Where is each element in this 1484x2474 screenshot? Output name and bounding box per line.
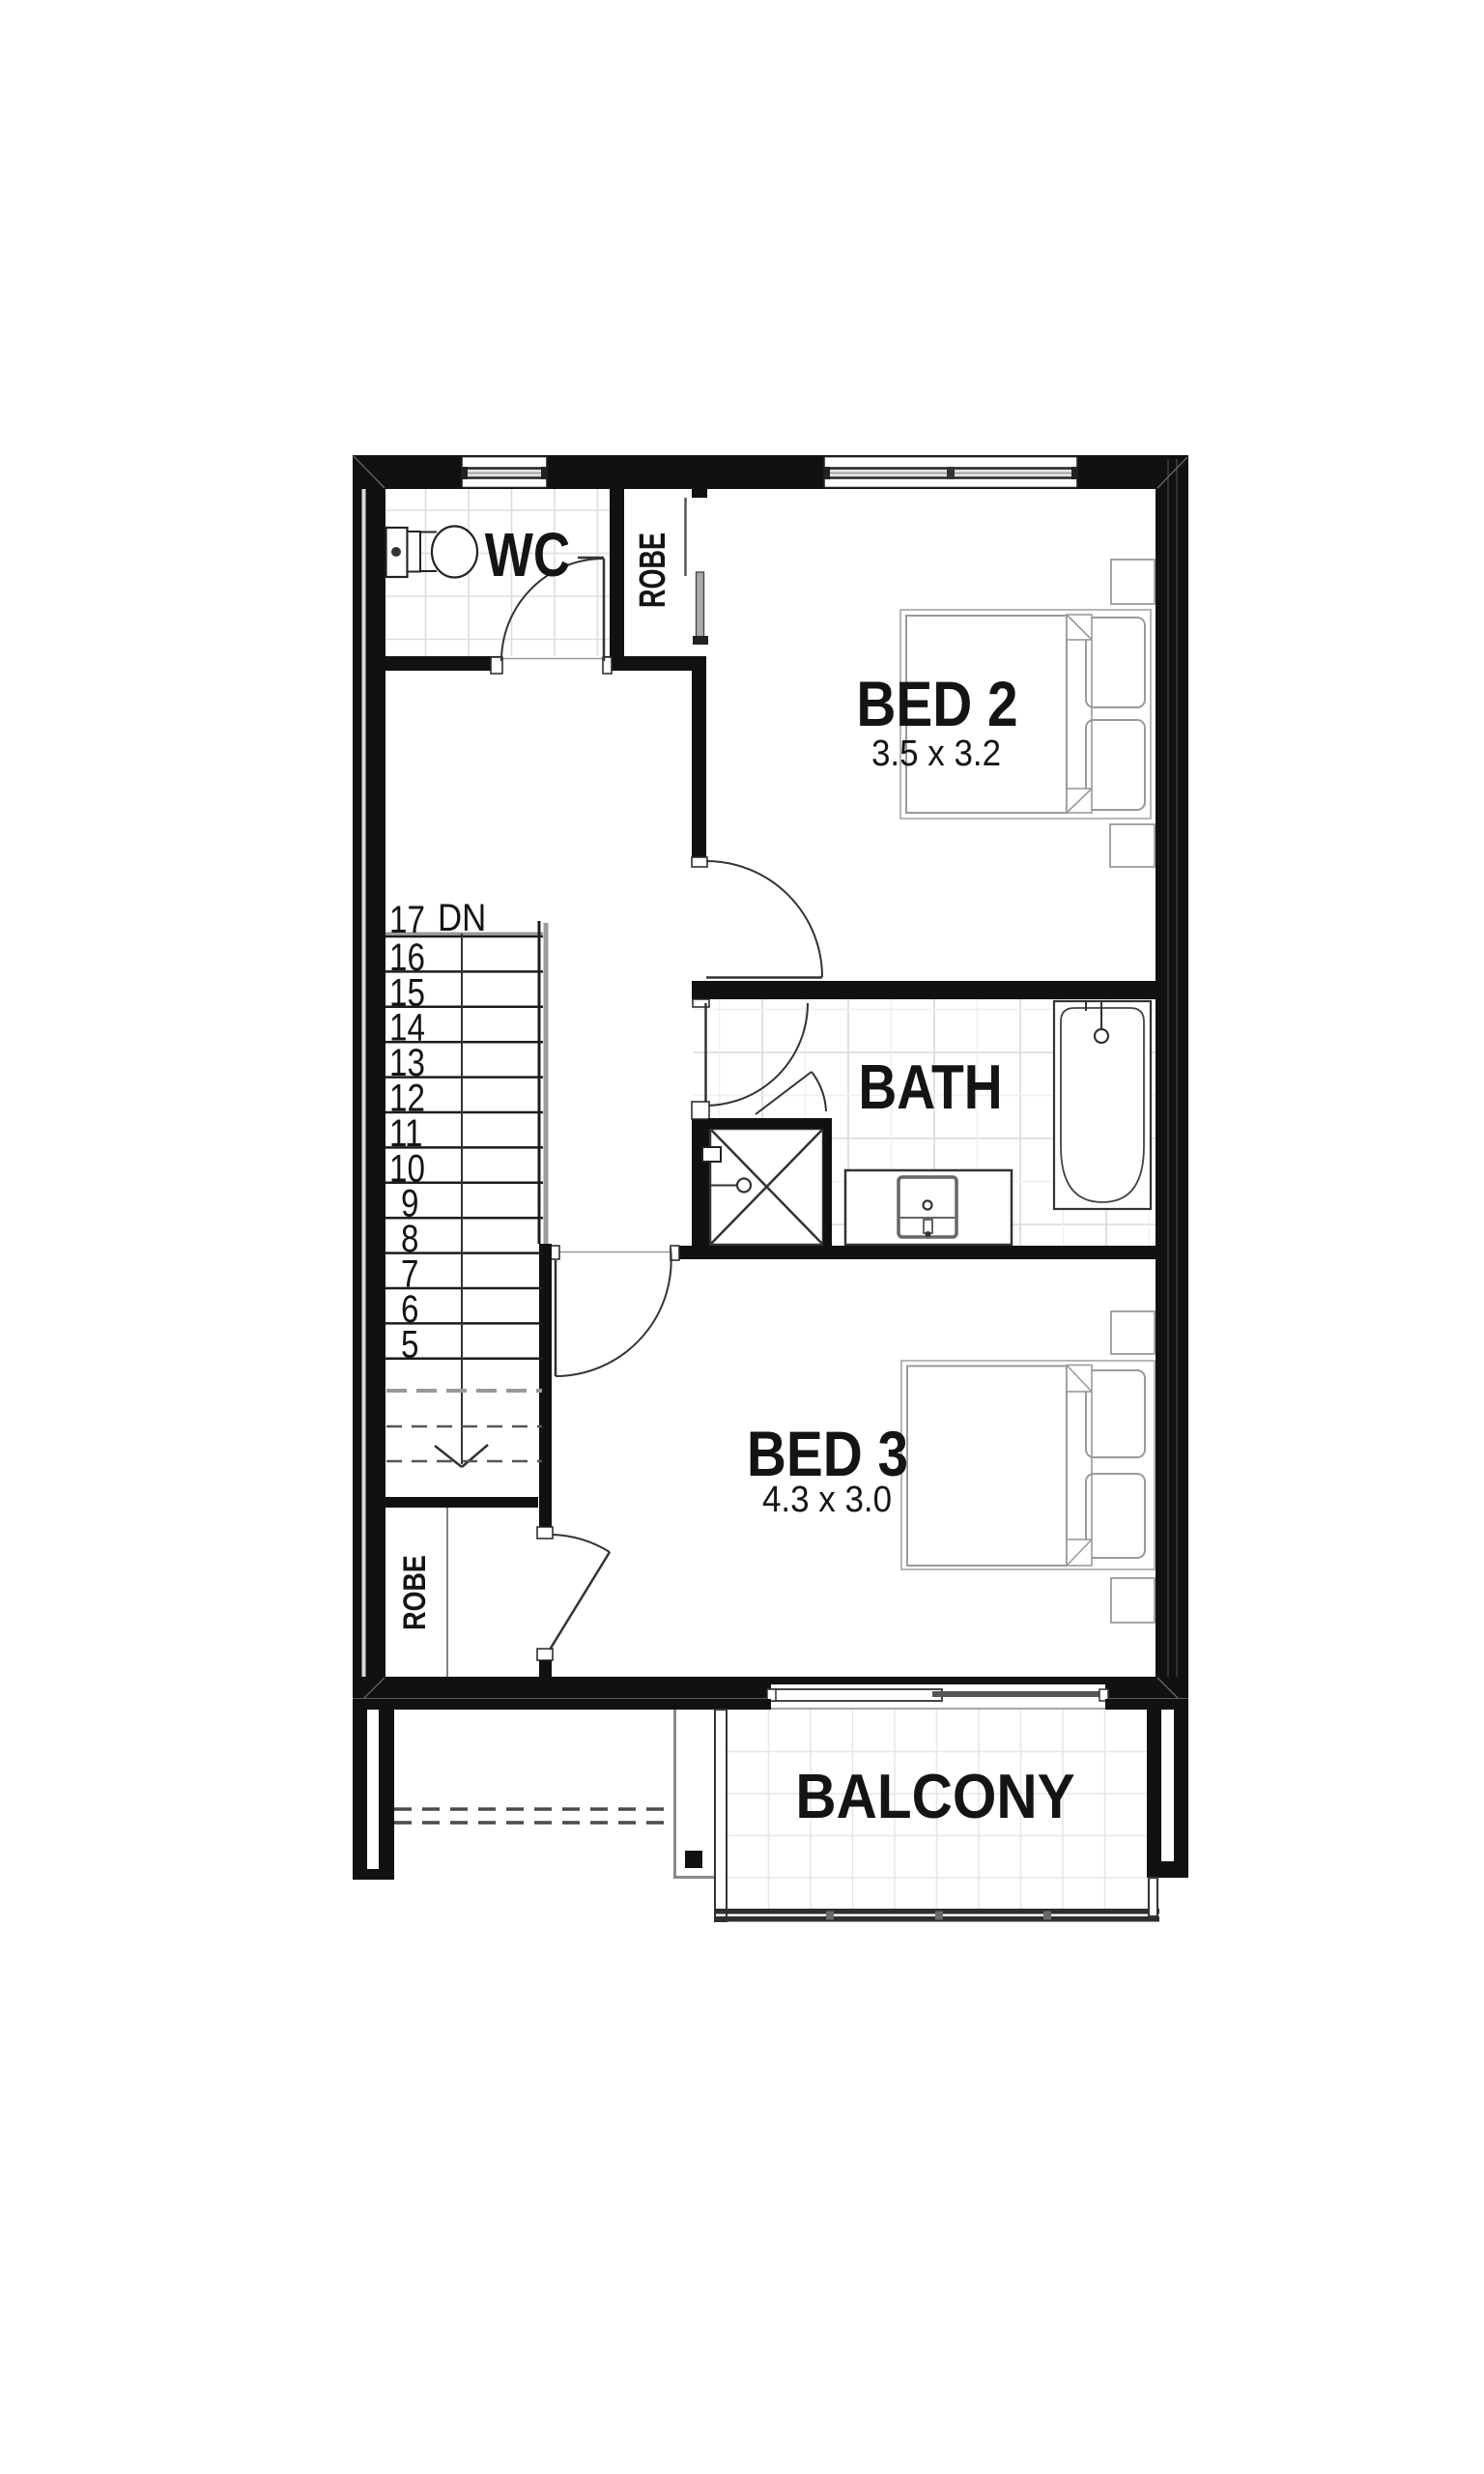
svg-text:3.5 x 3.2: 3.5 x 3.2 bbox=[871, 733, 1001, 774]
svg-text:4.3 x 3.0: 4.3 x 3.0 bbox=[762, 1479, 892, 1520]
svg-text:BATH: BATH bbox=[858, 1051, 1002, 1122]
svg-text:5: 5 bbox=[401, 1322, 418, 1366]
svg-text:ROBE: ROBE bbox=[631, 532, 672, 608]
svg-text:DN: DN bbox=[438, 896, 486, 939]
svg-text:BED 2: BED 2 bbox=[856, 669, 1017, 740]
svg-text:WC: WC bbox=[485, 521, 570, 590]
svg-text:ROBE: ROBE bbox=[398, 1555, 433, 1630]
svg-text:BALCONY: BALCONY bbox=[795, 1762, 1074, 1832]
